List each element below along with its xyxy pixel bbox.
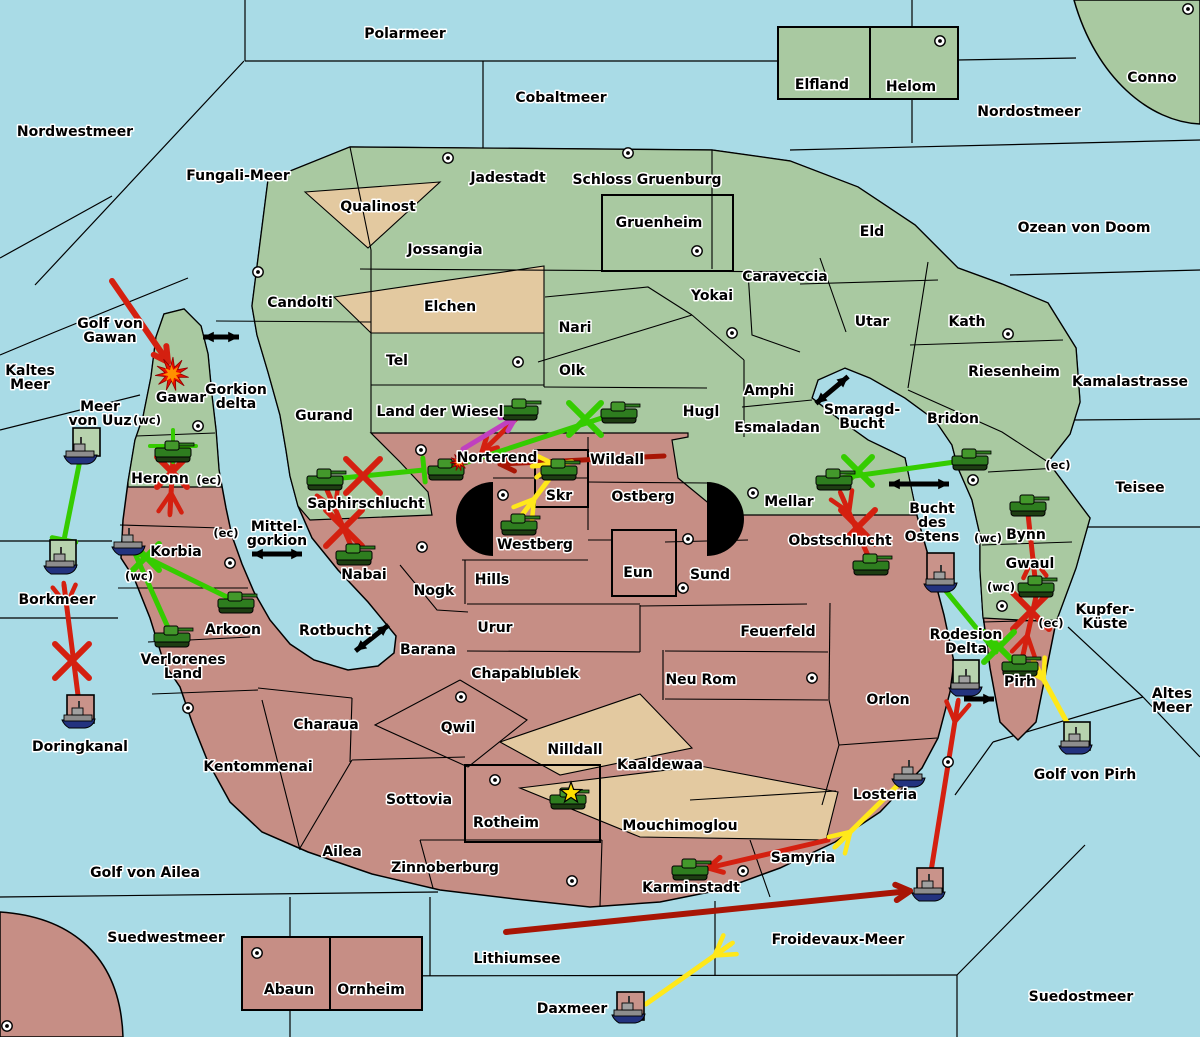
region-label-westberg[interactable]: Westberg	[497, 537, 573, 553]
region-label-kath[interactable]: Kath	[949, 314, 986, 330]
city-dot-center	[938, 39, 942, 43]
region-label-tel[interactable]: Tel	[386, 353, 408, 369]
region-label-nilldall[interactable]: Nilldall	[547, 742, 602, 758]
tank-turret	[317, 469, 331, 478]
sea-label-golf-von-gawan: Golf vonGawan	[77, 316, 143, 346]
ship-superstructure	[922, 881, 933, 888]
city-dot-center	[1006, 332, 1010, 336]
city-dot	[193, 421, 203, 431]
city-dot-center	[196, 424, 200, 428]
city-dot-center	[730, 331, 734, 335]
ship-deck	[46, 561, 74, 567]
city-dot-center	[946, 760, 950, 764]
city-dot	[225, 558, 235, 568]
region-label-nari[interactable]: Nari	[559, 320, 592, 336]
city-dot	[1003, 329, 1013, 339]
region-label-norterend[interactable]: Norterend	[457, 450, 538, 466]
city-dot	[253, 267, 263, 277]
region-label-samyria[interactable]: Samyria	[771, 850, 835, 866]
fork-arrowhead	[1044, 658, 1045, 680]
tank-barrel	[331, 471, 346, 474]
tank-barrel	[696, 861, 711, 864]
city-dot-center	[686, 537, 690, 541]
region-label-caraveccia[interactable]: Caraveccia	[742, 269, 828, 285]
sea-label-golf-von-pirh: Golf von Pirh	[1034, 767, 1136, 783]
region-label-elfland[interactable]: Elfland	[795, 77, 849, 93]
tank-turret	[228, 592, 242, 601]
region-label-jadestadt[interactable]: Jadestadt	[469, 170, 546, 186]
coast-marker-label: (ec)	[196, 473, 221, 487]
coast-marker-label: (ec)	[213, 526, 238, 540]
ship-superstructure	[934, 572, 945, 579]
city-dot-center	[971, 478, 975, 482]
region-label-schloss-gruenburg[interactable]: Schloss Gruenburg	[572, 172, 721, 188]
tank-barrel	[877, 556, 892, 559]
tank-turret	[551, 459, 565, 468]
ship-deck	[614, 1010, 642, 1016]
sea-label-altes-meer: AltesMeer	[1152, 686, 1192, 716]
sea-label-polarmeer: Polarmeer	[364, 26, 446, 42]
coast-marker-label: (wc)	[987, 580, 1015, 594]
city-dot-center	[681, 586, 685, 590]
region-label-helom[interactable]: Helom	[886, 79, 936, 95]
tank-barrel	[840, 471, 855, 474]
coast-marker-label: (wc)	[125, 569, 153, 583]
city-dot-center	[1000, 604, 1004, 608]
region-label-gawar[interactable]: Gawar	[156, 390, 206, 406]
abaun-ornheim-box	[242, 937, 422, 1010]
tank-barrel	[1034, 497, 1049, 500]
tank-turret	[611, 402, 625, 411]
city-dot-center	[1186, 7, 1190, 11]
game-map: (wc)(ec)(ec)(wc)(ec)(wc)(wc)(ec)Polarmee…	[0, 0, 1200, 1037]
city-dot	[738, 866, 748, 876]
region-label-hugl[interactable]: Hugl	[683, 404, 720, 420]
tank-barrel	[976, 451, 991, 454]
ship-superstructure	[622, 1003, 633, 1010]
sea-label-lithiumsee: Lithiumsee	[473, 951, 560, 967]
city-dot-center	[516, 360, 520, 364]
city-dot	[748, 488, 758, 498]
city-dot-center	[5, 1024, 9, 1028]
region-label-gwaul[interactable]: Gwaul	[1006, 556, 1055, 572]
region-label-saphirschlucht[interactable]: Saphirschlucht	[307, 496, 425, 512]
city-dot	[807, 673, 817, 683]
city-dot-center	[626, 151, 630, 155]
ship-deck	[1061, 741, 1089, 747]
sea-label-kupfer-k-ste: Kupfer-Küste	[1076, 602, 1135, 632]
sea-label-doringkanal: Doringkanal	[32, 739, 128, 755]
region-label-mellar[interactable]: Mellar	[764, 494, 813, 510]
city-dot	[943, 757, 953, 767]
sea-label-kaltes-meer: KaltesMeer	[5, 363, 55, 393]
tank-turret	[962, 449, 976, 458]
city-dot	[567, 876, 577, 886]
city-dot-center	[570, 879, 574, 883]
region-label-hills[interactable]: Hills	[475, 572, 509, 588]
coast-marker-label: (ec)	[1045, 458, 1070, 472]
region-label-olk[interactable]: Olk	[559, 363, 586, 379]
city-dot-center	[186, 706, 190, 710]
sea-label-nordostmeer: Nordostmeer	[977, 104, 1080, 120]
city-dot-center	[810, 676, 814, 680]
tank-turret	[165, 441, 179, 450]
region-label-nabai[interactable]: Nabai	[341, 567, 386, 583]
region-label-sottovia[interactable]: Sottovia	[386, 792, 452, 808]
ship-superstructure	[902, 767, 913, 774]
region-label-barana[interactable]: Barana	[400, 642, 456, 658]
region-label-bridon[interactable]: Bridon	[927, 411, 979, 427]
sea-label-golf-von-ailea: Golf von Ailea	[90, 865, 200, 881]
region-label-arkoon[interactable]: Arkoon	[205, 622, 261, 638]
region-label-wildall[interactable]: Wildall	[590, 452, 644, 468]
city-dot-center	[751, 491, 755, 495]
region-label-feuerfeld[interactable]: Feuerfeld	[740, 624, 815, 640]
wargame-map-screenshot: (wc)(ec)(ec)(wc)(ec)(wc)(wc)(ec)Polarmee…	[0, 0, 1200, 1037]
ship-deck	[914, 888, 942, 894]
sea-label-kamalastrasse: Kamalastrasse	[1072, 374, 1188, 390]
city-dot-center	[459, 695, 463, 699]
ship-deck	[926, 579, 954, 585]
sea-label-fungali-meer: Fungali-Meer	[186, 168, 290, 184]
ship-superstructure	[74, 444, 85, 451]
region-label-candolti[interactable]: Candolti	[267, 295, 333, 311]
region-label-conno[interactable]: Conno	[1127, 70, 1177, 86]
city-dot-center	[493, 778, 497, 782]
sea-label-rotbucht: Rotbucht	[299, 623, 371, 639]
region-label-karminstadt[interactable]: Karminstadt	[642, 880, 740, 896]
city-dot	[456, 692, 466, 702]
tank-turret	[863, 554, 877, 563]
region-label-ornheim[interactable]: Ornheim	[337, 982, 405, 998]
region-label-ailea[interactable]: Ailea	[322, 844, 361, 860]
region-label-kaaldewaa[interactable]: Kaaldewaa	[617, 757, 703, 773]
city-dot	[513, 357, 523, 367]
region-label-utar[interactable]: Utar	[855, 314, 890, 330]
city-dot	[935, 36, 945, 46]
tank-barrel	[242, 594, 257, 597]
tank-turret	[1012, 655, 1026, 664]
region-label-gurand[interactable]: Gurand	[295, 408, 353, 424]
region-label-heronn[interactable]: Heronn	[131, 471, 189, 487]
tank-turret	[511, 514, 525, 523]
region-label-ostberg[interactable]: Ostberg	[611, 489, 674, 505]
city-dot	[2, 1021, 12, 1031]
region-label-land-der-wiesel[interactable]: Land der Wiesel	[377, 404, 504, 420]
tank-turret	[682, 859, 696, 868]
tank-turret	[1020, 495, 1034, 504]
sea-label-cobaltmeer: Cobaltmeer	[515, 90, 606, 106]
city-dot-center	[446, 156, 450, 160]
region-label-eun[interactable]: Eun	[623, 565, 653, 581]
city-dot	[183, 703, 193, 713]
region-label-sund[interactable]: Sund	[690, 567, 730, 583]
region-label-amphi[interactable]: Amphi	[744, 383, 794, 399]
region-label-urur[interactable]: Urur	[477, 620, 512, 636]
tank-barrel	[360, 546, 375, 549]
sea-label-froidevaux-meer: Froidevaux-Meer	[772, 932, 905, 948]
city-dot	[683, 534, 693, 544]
city-dot	[443, 153, 453, 163]
ship-deck	[894, 774, 922, 780]
region-label-rotheim[interactable]: Rotheim	[473, 815, 539, 831]
region-label-riesenheim[interactable]: Riesenheim	[968, 364, 1060, 380]
region-label-chapablublek[interactable]: Chapablublek	[471, 666, 579, 682]
city-dot	[252, 948, 262, 958]
ship-superstructure	[1069, 734, 1080, 741]
region-label-orlon[interactable]: Orlon	[866, 692, 909, 708]
tank-barrel	[1026, 657, 1041, 660]
region-label-zinnoberburg[interactable]: Zinnoberburg	[391, 860, 499, 876]
region-label-abaun[interactable]: Abaun	[264, 982, 314, 998]
tank-barrel	[625, 404, 640, 407]
region-label-qualinost[interactable]: Qualinost	[340, 199, 416, 215]
tank-turret	[164, 626, 178, 635]
tank-barrel	[179, 443, 194, 446]
tank-barrel	[526, 401, 541, 404]
ship-deck	[66, 451, 94, 457]
tank-turret	[826, 469, 840, 478]
coast-marker-label: (wc)	[974, 531, 1002, 545]
region-label-esmaladan[interactable]: Esmaladan	[734, 420, 820, 436]
region-label-charaua[interactable]: Charaua	[293, 717, 358, 733]
region-label-elchen[interactable]: Elchen	[424, 299, 476, 315]
ship-superstructure	[959, 676, 970, 683]
ship-deck	[951, 683, 979, 689]
region-label-skr[interactable]: Skr	[546, 488, 572, 504]
tank-turret	[438, 459, 452, 468]
city-dot	[623, 148, 633, 158]
city-dot-center	[695, 249, 699, 253]
city-dot-center	[228, 561, 232, 565]
city-dot-center	[741, 869, 745, 873]
coast-marker-label: (ec)	[1038, 616, 1063, 630]
region-label-jossangia[interactable]: Jossangia	[406, 242, 482, 258]
ship-deck	[64, 715, 92, 721]
region-label-qwil[interactable]: Qwil	[441, 720, 475, 736]
city-dot	[727, 328, 737, 338]
tank-barrel	[525, 516, 540, 519]
ship-superstructure	[54, 554, 65, 561]
region-label-eld[interactable]: Eld	[860, 224, 884, 240]
city-dot-center	[420, 545, 424, 549]
region-label-nogk[interactable]: Nogk	[414, 583, 455, 599]
tank-barrel	[178, 628, 193, 631]
sea-label-daxmeer: Daxmeer	[537, 1001, 608, 1017]
blocked-bar	[423, 458, 425, 482]
arrowhead	[166, 346, 168, 362]
region-label-korbia[interactable]: Korbia	[150, 544, 201, 560]
region-label-pirh[interactable]: Pirh	[1004, 674, 1036, 690]
ship-deck	[114, 542, 142, 548]
city-dot	[498, 490, 508, 500]
coast-marker-label: (wc)	[133, 413, 161, 427]
sea-label-nordwestmeer: Nordwestmeer	[17, 124, 133, 140]
city-dot-center	[501, 493, 505, 497]
region-label-bynn[interactable]: Bynn	[1006, 527, 1046, 543]
region-label-gruenheim[interactable]: Gruenheim	[616, 215, 703, 231]
sea-label-ozean-von-doom: Ozean von Doom	[1018, 220, 1151, 236]
tank-barrel	[565, 461, 580, 464]
city-dot	[416, 445, 426, 455]
sea-label-suedwestmeer: Suedwestmeer	[107, 930, 225, 946]
city-dot-center	[256, 270, 260, 274]
tank-turret	[1028, 576, 1042, 585]
fork-arrowhead	[715, 954, 737, 955]
city-dot-center	[419, 448, 423, 452]
city-dot	[417, 542, 427, 552]
region-label-yokai[interactable]: Yokai	[690, 288, 733, 304]
city-dot-center	[255, 951, 259, 955]
city-dot	[678, 583, 688, 593]
region-label-neu-rom[interactable]: Neu Rom	[665, 672, 736, 688]
city-dot	[968, 475, 978, 485]
ship-superstructure	[72, 708, 83, 715]
sea-label-teisee: Teisee	[1115, 480, 1164, 496]
ship-superstructure	[122, 535, 133, 542]
city-dot	[692, 246, 702, 256]
region-label-obstschlucht[interactable]: Obstschlucht	[788, 533, 892, 549]
tank-turret	[512, 399, 526, 408]
sea-label-mittel-gorkion: Mittel-gorkion	[247, 519, 307, 549]
sea-label-borkmeer: Borkmeer	[19, 592, 96, 608]
fork-arrowhead	[849, 491, 852, 513]
city-dot	[1183, 4, 1193, 14]
region-label-kentommenai[interactable]: Kentommenai	[203, 759, 312, 775]
region-label-losteria[interactable]: Losteria	[853, 787, 917, 803]
tank-turret	[346, 544, 360, 553]
city-dot	[997, 601, 1007, 611]
city-dot	[490, 775, 500, 785]
tank-barrel	[1042, 578, 1057, 581]
region-label-mouchimoglou[interactable]: Mouchimoglou	[622, 818, 737, 834]
sea-label-suedostmeer: Suedostmeer	[1029, 989, 1134, 1005]
